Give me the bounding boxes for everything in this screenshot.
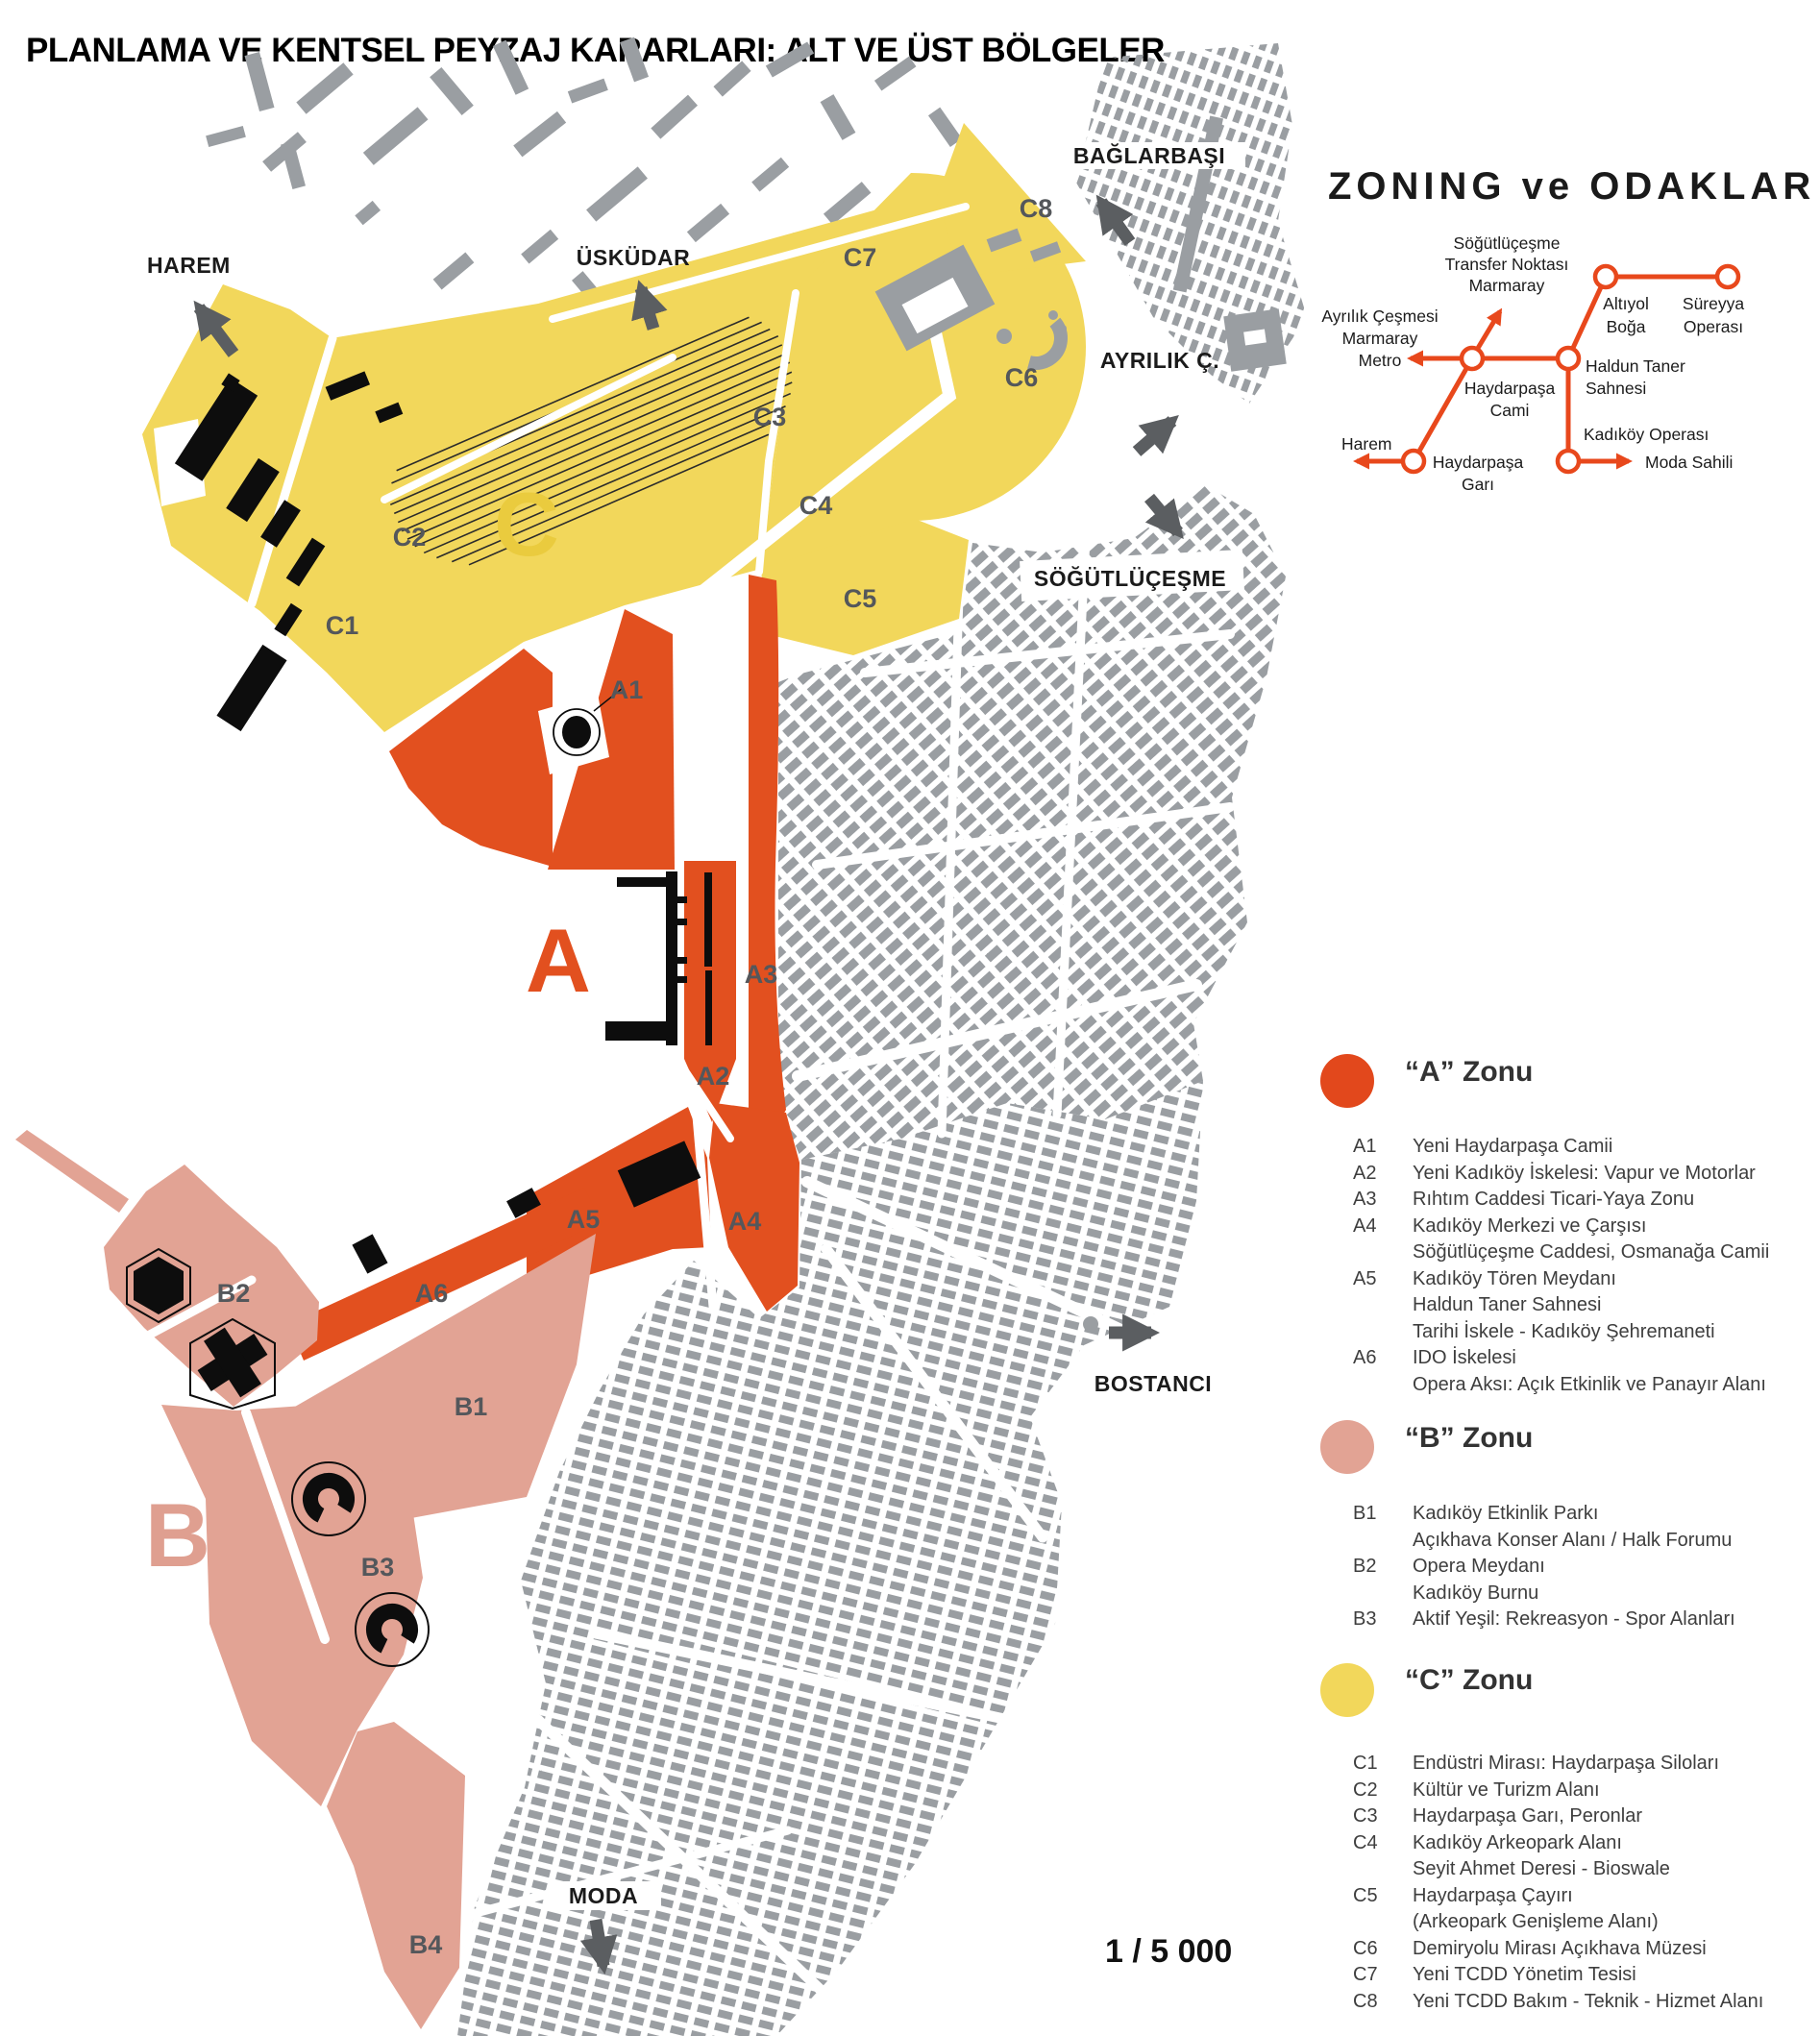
legend-c-items: C1 Endüstri Mirası: Haydarpaşa Siloları … <box>1353 1751 1814 2015</box>
label-sogutlucesme: SÖĞÜTLÜÇEŞME <box>1034 565 1226 591</box>
code-a6: A6 <box>415 1279 449 1308</box>
code-c3: C3 <box>753 403 787 431</box>
legend-item: A3 Rıhtım Caddesi Ticari-Yaya Zonu <box>1353 1187 1814 1214</box>
legend-item: B3 Aktif Yeşil: Rekreasyon - Spor Alanla… <box>1353 1607 1814 1633</box>
code-c2: C2 <box>393 523 427 552</box>
net-label-cami-1: Haydarpaşa <box>1464 379 1556 398</box>
legend-item: B1 Kadıköy Etkinlik Parkı Açıkhava Konse… <box>1353 1501 1814 1554</box>
ayrilik-arrow <box>1137 421 1172 452</box>
net-label-ayrilik-3: Metro <box>1359 351 1402 370</box>
code-a2: A2 <box>697 1062 730 1091</box>
net-label-moda-sahili: Moda Sahili <box>1645 453 1733 472</box>
legend-c-dot <box>1320 1663 1374 1717</box>
net-label-kadikoy-operasi: Kadıköy Operası <box>1584 425 1709 444</box>
code-a5: A5 <box>567 1205 601 1234</box>
focus-network: Söğütlüçeşme Transfer Noktası Marmaray A… <box>1321 233 1744 494</box>
code-c5: C5 <box>844 584 877 613</box>
label-baglarbasi: BAĞLARBAŞI <box>1073 142 1225 168</box>
legend-item: C6 Demiryolu Mirası Açıkhava Müzesi <box>1353 1936 1814 1963</box>
net-node-haydarpasa-cami <box>1462 348 1483 369</box>
net-label-sogutlucesme-2: Transfer Noktası <box>1445 255 1569 274</box>
code-a4: A4 <box>728 1207 762 1236</box>
plan-poster: PLANLAMA VE KENTSEL PEYZAJ KARARLARI: AL… <box>0 0 1820 2036</box>
code-b4: B4 <box>409 1930 443 1959</box>
code-b2: B2 <box>217 1279 251 1308</box>
net-label-sogutlucesme-1: Söğütlüçeşme <box>1454 233 1561 253</box>
net-node-haldun-taner <box>1558 348 1579 369</box>
panel-title: ZONING ve ODAKLAR <box>1328 165 1815 209</box>
legend-item: C1 Endüstri Mirası: Haydarpaşa Siloları <box>1353 1751 1814 1778</box>
legend-item: A4 Kadıköy Merkezi ve Çarşısı Söğütlüçeş… <box>1353 1214 1814 1266</box>
zone-letter-c: C <box>494 474 559 575</box>
code-b3: B3 <box>361 1553 395 1582</box>
label-uskudar: ÜSKÜDAR <box>577 245 691 270</box>
label-harem: HAREM <box>147 253 231 278</box>
legend-item: A5 Kadıköy Tören Meydanı Haldun Taner Sa… <box>1353 1266 1814 1346</box>
legend-item: A2 Yeni Kadıköy İskelesi: Vapur ve Motor… <box>1353 1161 1814 1188</box>
net-node-sureyya <box>1717 266 1738 287</box>
code-c1: C1 <box>326 611 359 640</box>
code-c6: C6 <box>1005 363 1039 392</box>
net-label-ayrilik-1: Ayrılık Çeşmesi <box>1321 307 1438 326</box>
legend-b-items: B1 Kadıköy Etkinlik Parkı Açıkhava Konse… <box>1353 1501 1814 1633</box>
legend-item: C7 Yeni TCDD Yönetim Tesisi <box>1353 1962 1814 1989</box>
label-ayrilik: AYRILIK Ç. <box>1100 348 1219 373</box>
scale-label: 1 / 5 000 <box>1105 1933 1232 1970</box>
legend-a-items: A1 Yeni Haydarpaşa Camii A2 Yeni Kadıköy… <box>1353 1134 1814 1398</box>
net-label-altiyol-1: Altıyol <box>1603 294 1649 313</box>
stadium-building <box>1223 308 1287 372</box>
moda-arrow <box>596 1920 603 1966</box>
code-b1: B1 <box>455 1392 488 1421</box>
net-label-gar-2: Garı <box>1462 475 1494 494</box>
net-label-harem: Harem <box>1341 434 1392 454</box>
legend-item: C3 Haydarpaşa Garı, Peronlar <box>1353 1803 1814 1830</box>
legend-b-title: “B” Zonu <box>1405 1422 1533 1455</box>
code-c7: C7 <box>844 243 877 272</box>
legend-item: C5 Haydarpaşa Çayırı (Arkeopark Genişlem… <box>1353 1883 1814 1936</box>
legend-item: C4 Kadıköy Arkeopark Alanı Seyit Ahmet D… <box>1353 1830 1814 1883</box>
legend-item: C8 Yeni TCDD Bakım - Teknik - Hizmet Ala… <box>1353 1989 1814 2016</box>
code-a3: A3 <box>745 960 778 989</box>
legend-b-dot <box>1320 1420 1374 1474</box>
net-label-sogutlucesme-3: Marmaray <box>1469 276 1545 295</box>
net-label-altiyol-2: Boğa <box>1607 317 1646 336</box>
label-moda: MODA <box>569 1883 638 1908</box>
legend-item: B2 Opera Meydanı Kadıköy Burnu <box>1353 1554 1814 1607</box>
net-label-gar-1: Haydarpaşa <box>1433 453 1524 472</box>
code-a1: A1 <box>610 675 644 704</box>
legend-c-title: “C” Zonu <box>1405 1664 1533 1697</box>
zone-b4-tail <box>327 1722 465 2029</box>
legend-item: A6 IDO İskelesi Opera Aksı: Açık Etkinli… <box>1353 1345 1814 1398</box>
zone-b-breakwater <box>15 1130 129 1213</box>
bostanci-node-dot <box>1083 1316 1098 1332</box>
net-node-kadikoy-operasi <box>1558 451 1579 472</box>
net-label-ayrilik-2: Marmaray <box>1342 329 1418 348</box>
city-map: HAREM ÜSKÜDAR BAĞLARBAŞI AYRILIK Ç. SÖĞÜ… <box>0 0 1820 2036</box>
legend-a-dot <box>1320 1054 1374 1108</box>
zone-letter-a: A <box>526 910 591 1011</box>
net-label-haldun-1: Haldun Taner <box>1586 356 1685 376</box>
code-c8: C8 <box>1020 194 1053 223</box>
net-label-sureyya-1: Süreyya <box>1683 294 1744 313</box>
legend-item: C2 Kültür ve Turizm Alanı <box>1353 1778 1814 1804</box>
net-node-gar <box>1403 451 1424 472</box>
legend-a-title: “A” Zonu <box>1405 1056 1533 1089</box>
net-node-sogutlucesme <box>1595 266 1616 287</box>
zone-letter-b: B <box>145 1484 210 1585</box>
net-label-sureyya-2: Operası <box>1684 317 1743 336</box>
net-label-cami-2: Cami <box>1490 401 1530 420</box>
code-c4: C4 <box>799 491 833 520</box>
legend-item: A1 Yeni Haydarpaşa Camii <box>1353 1134 1814 1161</box>
net-label-haldun-2: Sahnesi <box>1586 379 1646 398</box>
label-bostanci: BOSTANCI <box>1094 1371 1212 1396</box>
net-arrow-marmaray <box>1477 311 1500 350</box>
